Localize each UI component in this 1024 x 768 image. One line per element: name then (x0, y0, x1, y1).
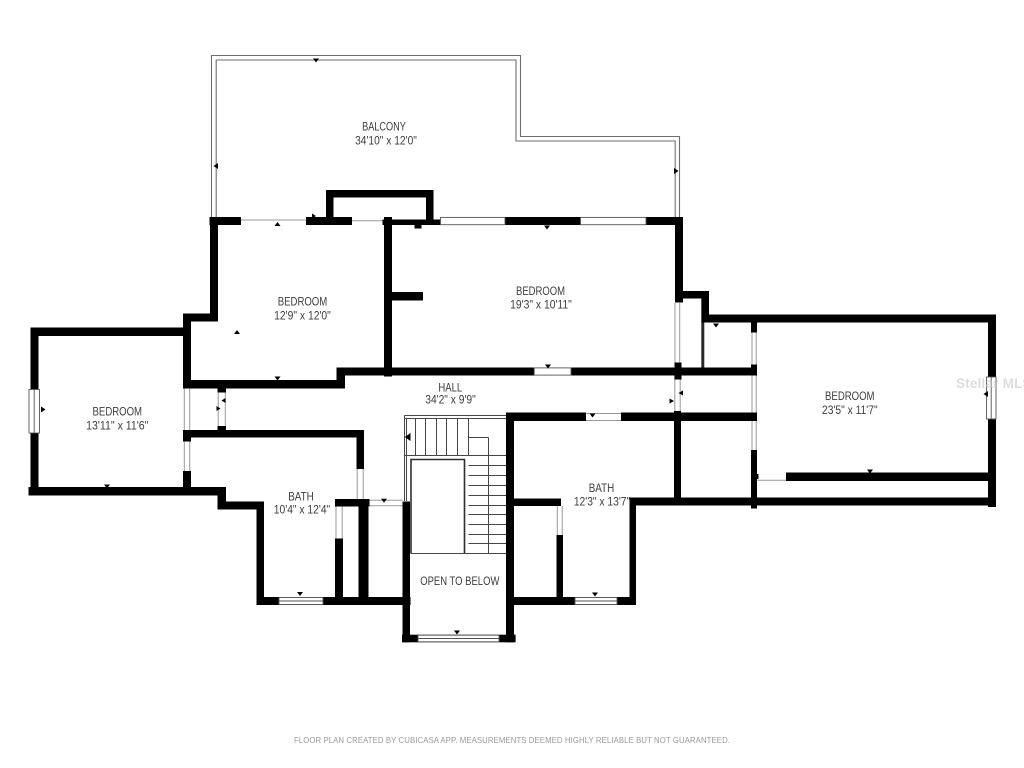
svg-text:Stellar MLS: Stellar MLS (956, 376, 1024, 391)
svg-text:12'9" x 12'0": 12'9" x 12'0" (274, 308, 331, 322)
svg-text:34'2" x 9'9": 34'2" x 9'9" (425, 393, 476, 407)
svg-text:BEDROOM: BEDROOM (516, 284, 565, 298)
svg-text:FLOOR PLAN CREATED BY CUBICASA: FLOOR PLAN CREATED BY CUBICASA APP. MEAS… (294, 736, 730, 745)
svg-text:BEDROOM: BEDROOM (825, 389, 875, 403)
svg-text:34'10" x 12'0": 34'10" x 12'0" (355, 133, 417, 147)
svg-text:13'11" x 11'6": 13'11" x 11'6" (86, 418, 148, 432)
svg-text:BEDROOM: BEDROOM (278, 294, 328, 308)
svg-text:23'5" x 11'7": 23'5" x 11'7" (822, 403, 878, 417)
svg-text:OPEN TO BELOW: OPEN TO BELOW (420, 574, 500, 588)
svg-text:19'3" x 10'11": 19'3" x 10'11" (510, 298, 572, 312)
svg-text:BATH: BATH (589, 481, 615, 495)
svg-text:12'3" x 13'7": 12'3" x 13'7" (574, 494, 630, 508)
svg-text:BALCONY: BALCONY (362, 119, 406, 133)
svg-text:10'4" x 12'4": 10'4" x 12'4" (274, 503, 330, 517)
svg-text:BATH: BATH (288, 489, 314, 503)
svg-text:BEDROOM: BEDROOM (93, 405, 143, 419)
